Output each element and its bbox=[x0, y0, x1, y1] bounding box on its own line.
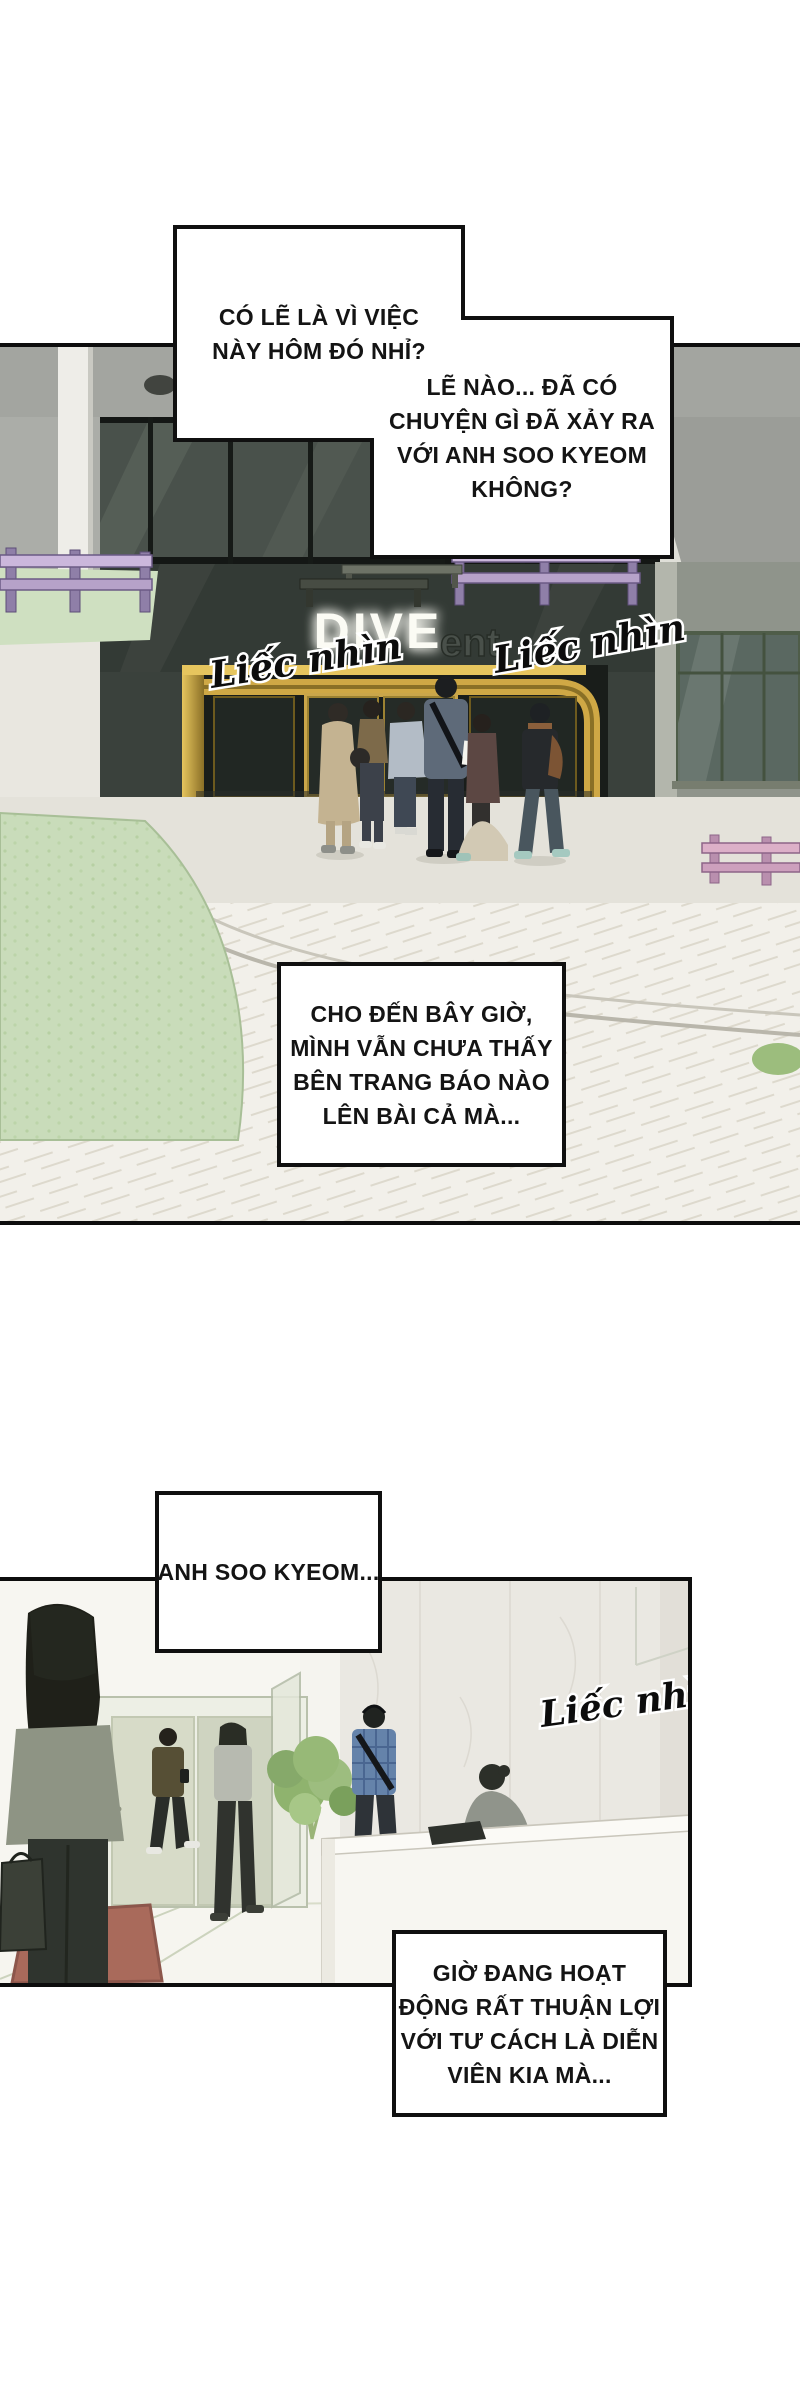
speech-bubble-5: GIỜ ĐANG HOẠT ĐỘNG RẤT THUẬN LỢI VỚI TƯ … bbox=[392, 1930, 667, 2117]
bubble2-line: LẼ NÀO... ĐÃ CÓ bbox=[426, 370, 617, 404]
speech-bubble-2-text: LẼ NÀO... ĐÃ CÓ CHUYỆN GÌ ĐÃ XẢY RA VỚI … bbox=[374, 320, 670, 555]
bubble3-line: CHO ĐẾN BÂY GIỜ, bbox=[310, 997, 532, 1031]
bubble3-line: BÊN TRANG BÁO NÀO bbox=[293, 1065, 550, 1099]
speech-bubble-3: CHO ĐẾN BÂY GIỜ, MÌNH VẪN CHƯA THẤY BÊN … bbox=[277, 962, 566, 1167]
right-wall-windows bbox=[655, 562, 800, 797]
bubble5-line: GIỜ ĐANG HOẠT bbox=[433, 1956, 626, 1990]
bubble5-line: VIÊN KIA MÀ... bbox=[447, 2058, 611, 2092]
bubble3-line: LÊN BÀI CẢ MÀ... bbox=[323, 1099, 521, 1133]
bubble5-line: ĐỘNG RẤT THUẬN LỢI bbox=[399, 1990, 660, 2024]
bubble4-line: ANH SOO KYEOM... bbox=[157, 1555, 379, 1589]
bubble3-line: MÌNH VẪN CHƯA THẤY bbox=[290, 1031, 553, 1065]
bubble5-line: VỚI TƯ CÁCH LÀ DIỄN bbox=[401, 2024, 659, 2058]
speech-bubble-4: ANH SOO KYEOM... bbox=[155, 1491, 382, 1653]
bubble2-line: KHÔNG? bbox=[471, 472, 572, 506]
comic-page: DIVE ent bbox=[0, 0, 800, 2400]
bubble2-line: CHUYỆN GÌ ĐÃ XẢY RA bbox=[389, 404, 655, 438]
bubble2-line: VỚI ANH SOO KYEOM bbox=[397, 438, 647, 472]
panel2-right-border bbox=[688, 1577, 692, 1987]
panel1-bottom-border bbox=[0, 1221, 800, 1225]
